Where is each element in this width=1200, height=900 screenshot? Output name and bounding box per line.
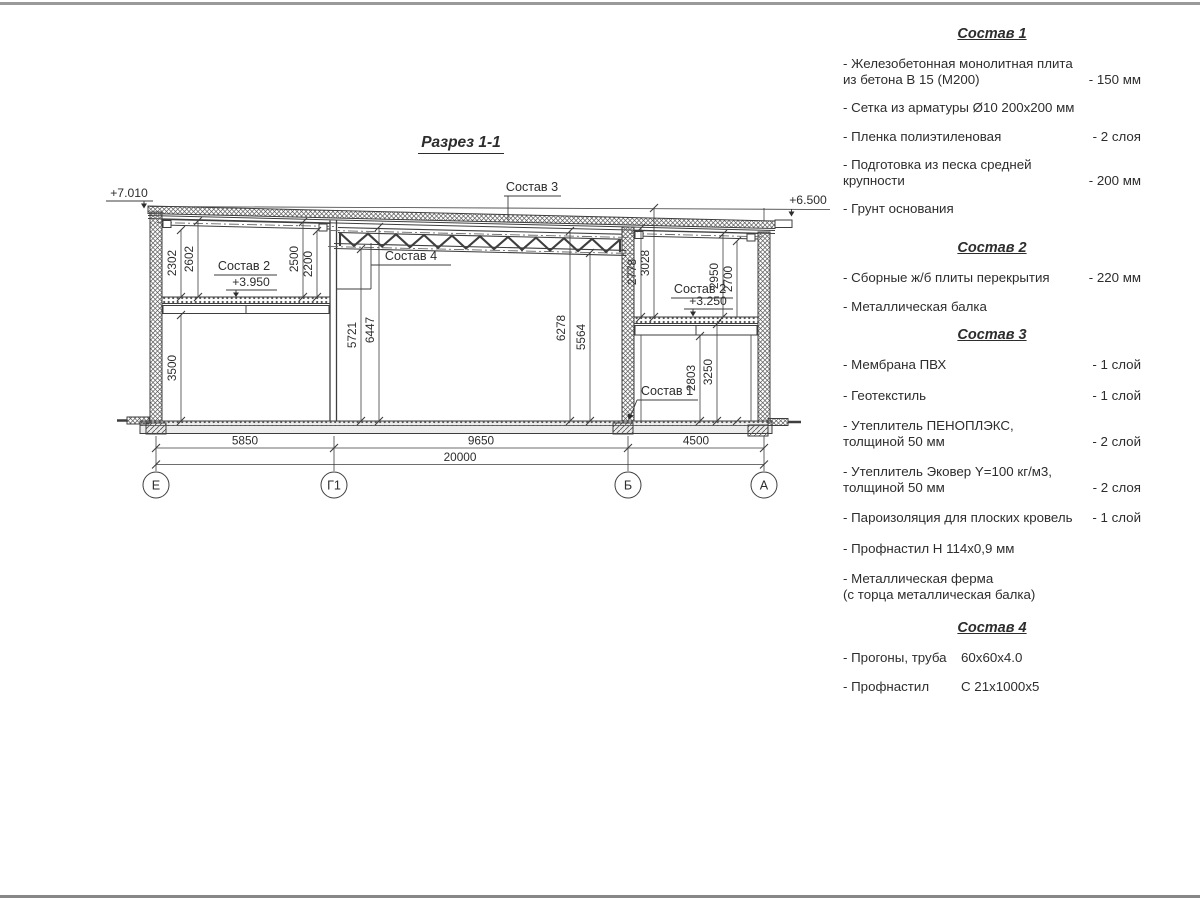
dim-6278: 6278 [554,314,568,341]
foundation-pad-e [146,423,166,434]
section-drawing: Разрез 1-1 [0,0,840,520]
left-floor-slab [162,297,330,314]
callout-sostav3: Состав 3 [504,180,561,220]
dim-3028: 3028 [638,249,652,276]
foundation-pad-b [613,423,633,434]
dim-5850: 5850 [232,434,259,448]
svg-text:Состав 4: Состав 4 [385,249,437,263]
svg-text:+6.500: +6.500 [789,193,827,207]
note-item: - Подготовка из песка средней крупности … [843,157,1141,188]
note-item: - Грунт основания [843,201,1141,217]
elevation-roof-left: +7.010 [106,186,153,209]
bottom-dimensions: 5850 9650 4500 20000 [152,434,768,472]
dim-3250: 3250 [701,358,715,385]
drawing-title: Разрез 1-1 [418,134,504,154]
note-item: - Металлическая ферма (с торца металличе… [843,571,1141,602]
note-item: - Профнастил Н 114х0,9 мм [843,541,1141,557]
axis-label-g1: Г1 [327,479,341,493]
dim-20000: 20000 [444,450,477,464]
note-item: - Пленка полиэтиленовая - 2 слоя [843,129,1141,145]
dim-6447: 6447 [363,317,377,343]
notes-title-4: Состав 4 [843,620,1141,636]
note-item: - Геотекстиль - 1 слой [843,388,1141,404]
note-item: - Профнастил С 21х1000х5 [843,679,1141,695]
svg-text:Состав 2: Состав 2 [674,282,726,296]
roof-edge-cap [775,220,792,228]
svg-text:Состав 2: Состав 2 [218,259,270,273]
note-item: - Утеплитель ПЕНОПЛЭКС, толщиной 50 мм -… [843,418,1141,449]
page-bottom-border [0,895,1200,898]
svg-text:Состав 1: Состав 1 [641,384,693,398]
dim-2302: 2302 [165,250,179,276]
section-title: Разрез 1-1 [421,134,501,151]
notes-sostav-4: Состав 4 - Прогоны, труба 60х60х4.0 - Пр… [843,620,1141,707]
roof-slab [148,206,830,234]
roof-truss [328,228,632,256]
note-item: - Мембрана ПВХ - 1 слой [843,357,1141,373]
notes-sostav-1: Состав 1 - Железобетонная монолитная пли… [843,26,1141,230]
note-item: - Металлическая балка [843,299,1141,315]
callout-sostav1: Состав 1 [628,384,699,420]
svg-text:Состав 3: Состав 3 [506,180,558,194]
elevation-roof-right: +6.500 [789,193,828,217]
foundation-pad-a [748,425,768,436]
wall-axis-a [758,232,770,421]
note-item: - Прогоны, труба 60х60х4.0 [843,650,1141,666]
note-item: - Железобетонная монолитная плита из бет… [843,56,1141,87]
dim-2778: 2778 [625,258,639,285]
dim-5564: 5564 [574,323,588,350]
callout-sostav2-left: Состав 2 [214,259,277,275]
svg-text:+3.250: +3.250 [689,294,727,308]
dim-9650: 9650 [468,434,495,448]
dim-5721: 5721 [345,322,359,348]
note-item: - Пароизоляция для плоских кровель - 1 с… [843,510,1141,526]
callout-sostav4: Состав 4 [336,243,451,289]
left-ceiling-beam [157,220,335,232]
elevation-slab-left: +3.950 [226,275,277,297]
note-item: - Сборные ж/б плиты перекрытия - 220 мм [843,270,1141,286]
notes-title-3: Состав 3 [843,327,1141,343]
left-edge-beam [127,417,149,424]
svg-text:+3.950: +3.950 [232,275,270,289]
dim-4500: 4500 [683,434,710,448]
axis-bubbles: Е Г1 Б А [143,472,777,498]
right-edge-beam [768,419,788,426]
dim-2200: 2200 [301,250,315,277]
dim-2602: 2602 [182,246,196,272]
right-ceiling-beam [629,231,763,242]
callout-sostav2-right: Состав 2 [671,282,733,298]
notes-title-1: Состав 1 [843,26,1141,42]
note-item: - Сетка из арматуры Ø10 200х200 мм [843,100,1141,116]
dim-2500: 2500 [287,245,301,272]
notes-sostav-3: Состав 3 - Мембрана ПВХ - 1 слой - Геоте… [843,327,1141,617]
notes-title-2: Состав 2 [843,240,1141,256]
dim-3500: 3500 [165,354,179,381]
wall-axis-g1 [330,221,337,422]
svg-text:+7.010: +7.010 [110,186,148,200]
axis-label-e: Е [152,479,160,493]
wall-axis-e [150,212,162,421]
notes-sostav-2: Состав 2 - Сборные ж/б плиты перекрытия … [843,240,1141,327]
axis-label-a: А [760,479,769,493]
wall-axis-b [622,227,634,421]
elevation-slab-right: +3.250 [684,294,733,317]
note-item: - Утеплитель Эковер Y=100 кг/м3, толщино… [843,464,1141,495]
axis-label-b: Б [624,479,632,493]
